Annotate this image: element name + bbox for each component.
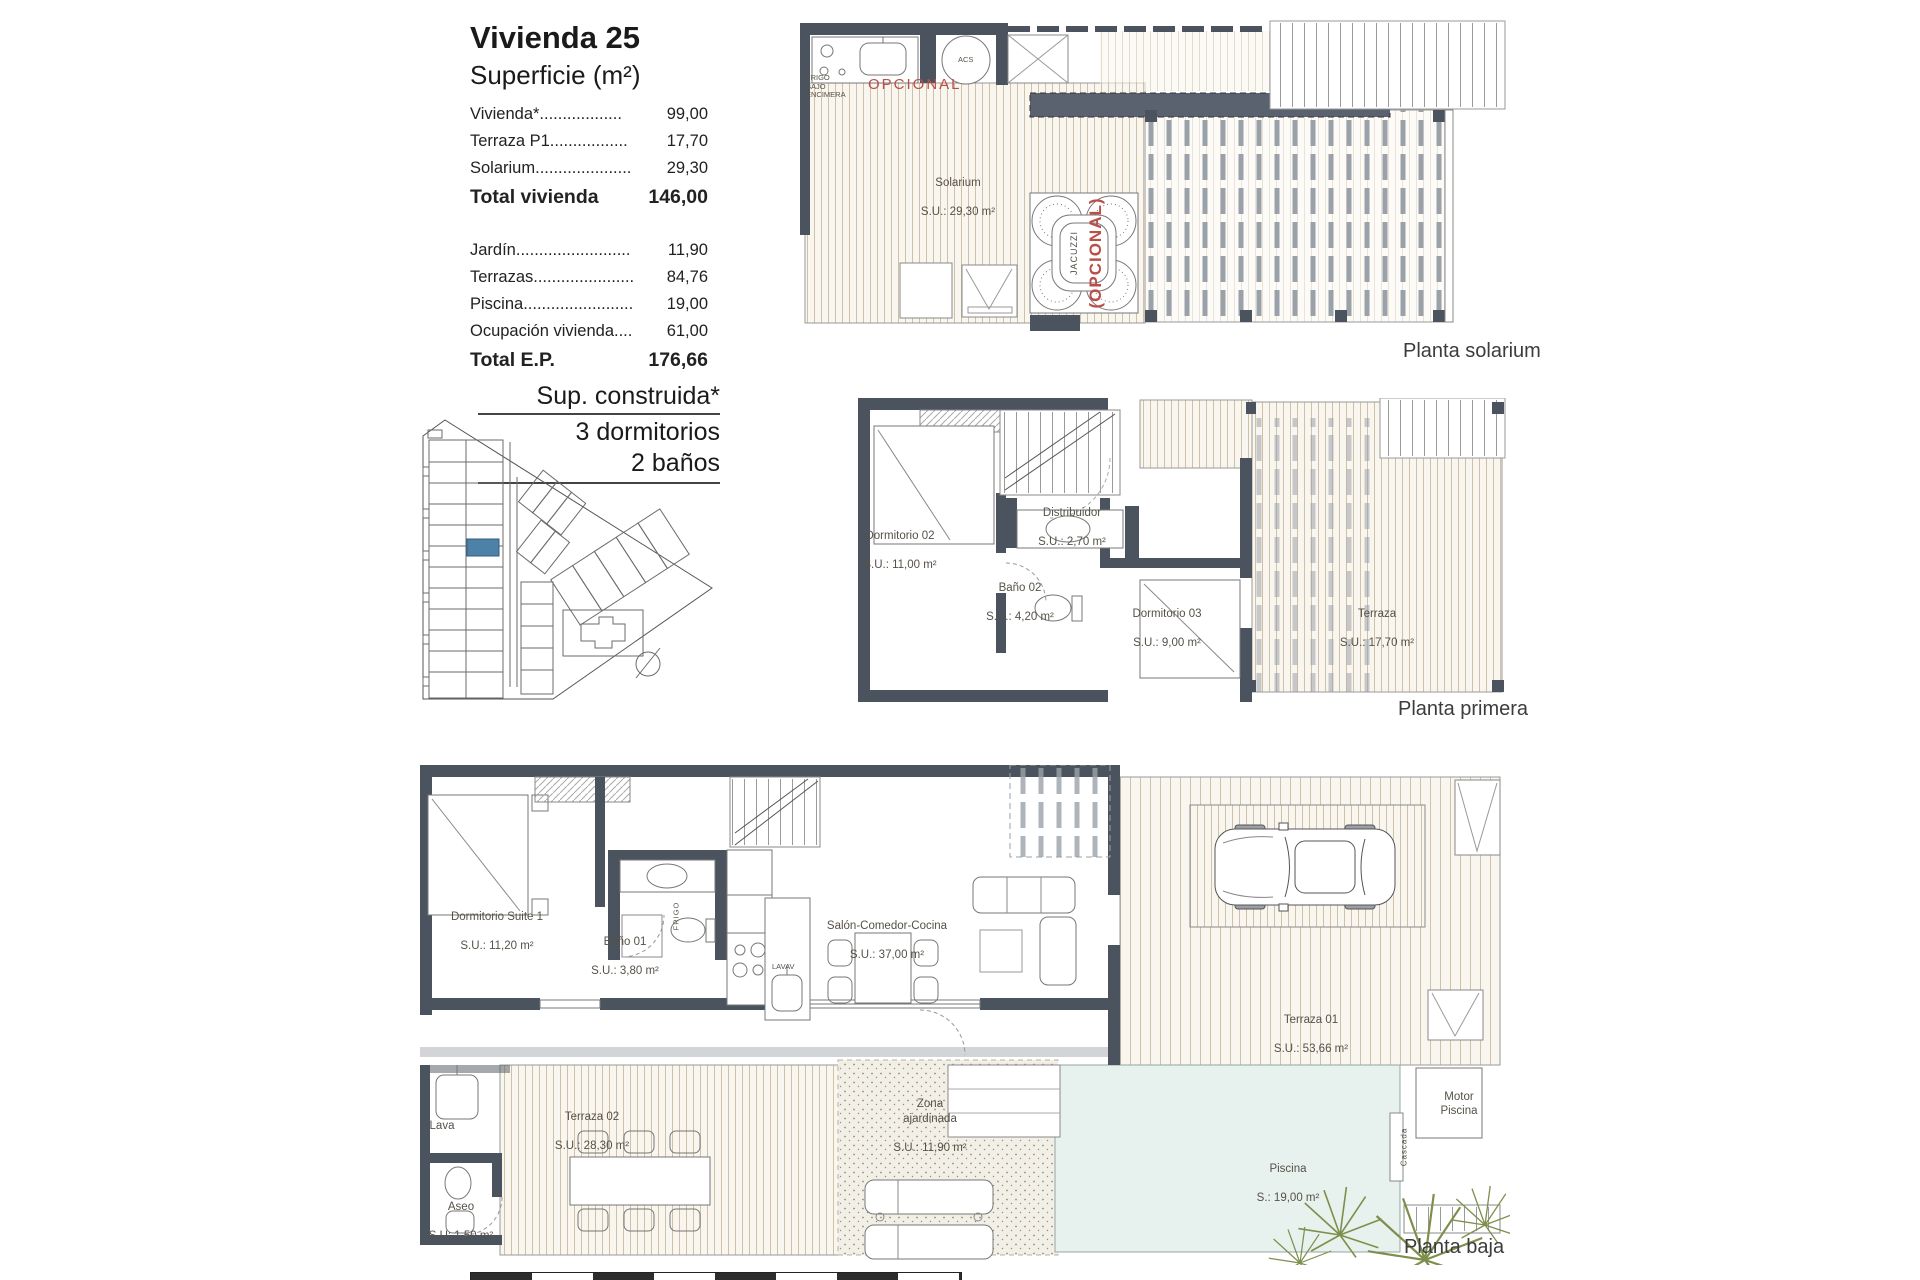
table-row: Terraza P1.................17,70 (470, 132, 708, 151)
sup-construida-label: Sup. construida* (478, 382, 720, 415)
acs-label: ACS (958, 56, 973, 65)
room-label-bano-02: Baño 02 S.U.: 4,20 m² (986, 567, 1054, 639)
room-label-salon: Salón-Comedor-Cocina S.U.: 37,00 m² (827, 905, 947, 977)
table-row: Jardín.........................11,90 (470, 241, 708, 260)
room-label-terraza-p1: Terraza S.U.: 17,70 m² (1340, 593, 1414, 665)
room-label-piscina: Piscina S.: 19,00 m² (1257, 1148, 1320, 1220)
room-label-aseo: Aseo S.U: 1,50 m² (429, 1186, 494, 1258)
plan-name-solarium: Planta solarium (1403, 340, 1541, 363)
table-row: Solarium.....................29,30 (470, 159, 708, 178)
surface-table: Vivienda 25 Superficie (m²) Vivienda*...… (470, 20, 708, 380)
floorplan-sheet: Vivienda 25 Superficie (m²) Vivienda*...… (0, 0, 1920, 1280)
frigo-label: FRIGO (672, 902, 681, 931)
table-row: Ocupación vivienda....61,00 (470, 322, 708, 341)
table-row: Piscina........................19,00 (470, 295, 708, 314)
lavav-label: LAVAV (772, 963, 795, 972)
room-label-solarium: Solarium S.U.: 29,30 m² (921, 162, 995, 234)
plan-solarium (800, 15, 1510, 345)
page-title: Vivienda 25 (470, 20, 708, 56)
table-row: Vivienda*..................99,00 (470, 105, 708, 124)
plan-name-primera: Planta primera (1398, 698, 1528, 721)
scale-bar (470, 1272, 962, 1280)
room-label-terraza-02: Terraza 02 S.U.: 28,30 m² (555, 1096, 629, 1168)
lava-label: Lava (430, 1119, 455, 1133)
table-row: Terrazas......................84,76 (470, 268, 708, 287)
room-label-dormitorio-suite: Dormitorio Suite 1 S.U.: 11,20 m² (451, 896, 543, 968)
room-label-distribuidor: Distribuidor S.U.: 2,70 m² (1038, 492, 1106, 564)
plan-name-baja: Planta baja (1404, 1236, 1504, 1259)
cascada-label: Cascada (1400, 1128, 1409, 1167)
motor-piscina-label: Motor Piscina (1440, 1090, 1477, 1119)
room-label-bano-01: Baño 01 S.U.: 3,80 m² (591, 921, 659, 993)
jacuzzi-opcional-label: (OPCIONAL) (1086, 197, 1106, 308)
opcional-label: OPCIONAL (868, 76, 962, 93)
table-row-total-ep: Total E.P.176,66 (470, 349, 708, 372)
room-label-dormitorio-02: Dormitorio 02 S.U.: 11,00 m² (863, 515, 936, 587)
frigo-bajo-encimera-label: FRIGO BAJO ENCIMERA (806, 74, 846, 100)
site-plan (415, 412, 725, 707)
room-label-terraza-01: Terraza 01 S.U.: 53,66 m² (1274, 999, 1348, 1071)
room-label-dormitorio-03: Dormitorio 03 S.U.: 9,00 m² (1132, 593, 1201, 665)
table-row-total-vivienda: Total vivienda146,00 (470, 186, 708, 209)
room-label-zona-ajardinada: Zona ajardinada S.U.: 11,90 m² (893, 1083, 966, 1169)
surface-subtitle: Superficie (m²) (470, 60, 708, 91)
jacuzzi-label: JACUZZI (1069, 231, 1079, 275)
highlighted-unit (467, 539, 499, 556)
